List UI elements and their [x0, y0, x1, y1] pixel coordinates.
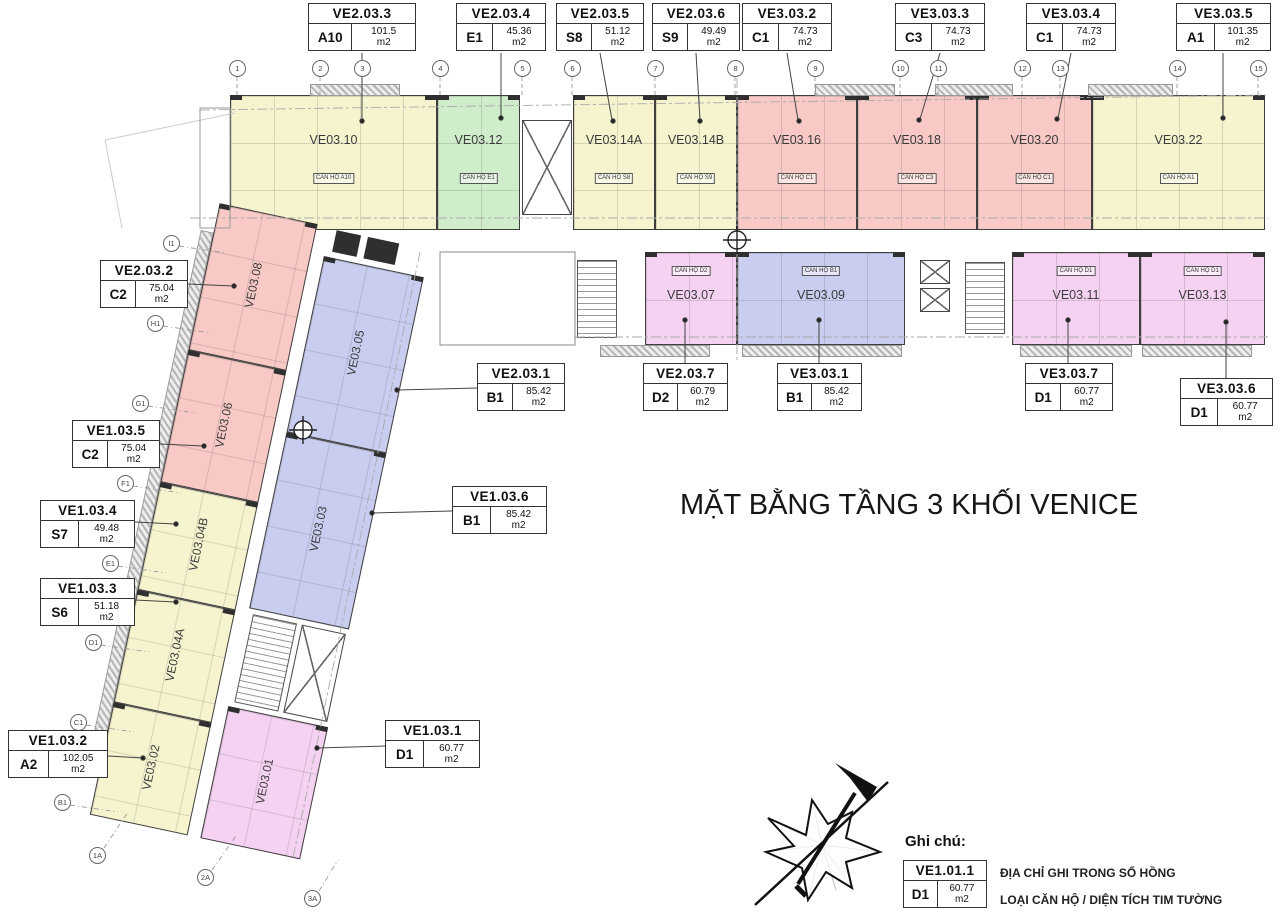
- callout-area: 74.73m2: [1063, 24, 1115, 50]
- callout-type: D1: [1181, 399, 1218, 425]
- unit-type-tag: CĂN HỘ C1: [778, 173, 817, 183]
- elevator-shaft: [920, 288, 950, 312]
- callout-area: 60.79m2: [678, 384, 727, 410]
- callout-code: VE1.03.5: [73, 421, 159, 441]
- callout-area: 85.42m2: [812, 384, 861, 410]
- callout-ve3-03-5: VE3.03.5A1101.35m2: [1176, 3, 1271, 51]
- unit-ve03-03: VE03.03: [249, 432, 386, 629]
- legend-heading: Ghi chú:: [905, 833, 966, 850]
- callout-type: A1: [1177, 24, 1215, 50]
- unit-ve03-12: VE03.12CĂN HỘ E1: [437, 95, 520, 230]
- callout-type: D1: [386, 741, 424, 767]
- callout-area: 74.73m2: [779, 24, 831, 50]
- callout-type: D1: [1026, 384, 1061, 410]
- unit-type-tag: CĂN HỘ E1: [459, 173, 497, 183]
- callout-type: C2: [101, 281, 136, 307]
- unit-type-tag: CĂN HỘ B1: [802, 266, 840, 276]
- stair-core: [577, 260, 617, 338]
- callout-area: 102.05m2: [49, 751, 107, 777]
- grid-bubble-c1: C1: [70, 714, 87, 731]
- unit-ve03-04b: VE03.04B: [138, 482, 259, 610]
- grid-bubble-14: 14: [1169, 60, 1186, 77]
- balcony-hatch: [310, 84, 400, 96]
- unit-ve03-09: VE03.09CĂN HỘ B1: [737, 252, 905, 345]
- callout-ve2-03-1: VE2.03.1B185.42m2: [477, 363, 565, 411]
- callout-area: 51.18m2: [79, 599, 134, 625]
- unit-label: VE03.20: [978, 133, 1091, 147]
- unit-ve03-18: VE03.18CĂN HỘ C3: [857, 95, 977, 230]
- callout-area: 60.77m2: [1218, 399, 1272, 425]
- callout-type: E1: [457, 24, 493, 50]
- elevator-shaft: [522, 120, 572, 215]
- callout-area: 49.49m2: [688, 24, 739, 50]
- callout-area: 45.36m2: [493, 24, 545, 50]
- unit-ve03-13: VE03.13CĂN HỘ D1: [1140, 252, 1265, 345]
- grid-bubble-8: 8: [727, 60, 744, 77]
- unit-type-tag: CĂN HỘ S9: [677, 173, 715, 183]
- unit-label: VE03.05: [338, 302, 372, 403]
- callout-ve2-03-7: VE2.03.7D260.79m2: [643, 363, 728, 411]
- unit-type-tag: CĂN HỘ A1: [1159, 173, 1197, 183]
- callout-area: 60.77m2: [1061, 384, 1112, 410]
- legend-line-2: LOẠI CĂN HỘ / DIỆN TÍCH TIM TƯỜNG: [1000, 893, 1222, 907]
- callout-code: VE2.03.6: [653, 4, 739, 24]
- balcony-hatch: [742, 345, 902, 357]
- unit-label: VE03.08: [236, 236, 270, 335]
- callout-area: 101.35m2: [1215, 24, 1270, 50]
- callout-area: 85.42m2: [513, 384, 564, 410]
- grid-bubble-9: 9: [807, 60, 824, 77]
- callout-ve1-03-5: VE1.03.5C275.04m2: [72, 420, 160, 468]
- callout-type: B1: [778, 384, 812, 410]
- unit-label: VE03.13: [1141, 288, 1264, 302]
- callout-ve3-03-4: VE3.03.4C174.73m2: [1026, 3, 1116, 51]
- unit-ve03-07: VE03.07CĂN HỘ D2: [645, 252, 737, 345]
- balcony-hatch: [1088, 84, 1173, 96]
- unit-label: VE03.03: [301, 479, 335, 580]
- grid-bubble-2a: 2A: [197, 869, 214, 886]
- grid-bubble-1: 1: [229, 60, 246, 77]
- grid-bubble-1a: 1A: [89, 847, 106, 864]
- unit-type-tag: CĂN HỘ S8: [595, 173, 633, 183]
- unit-label: VE03.04A: [158, 605, 192, 704]
- legend-line-1: ĐỊA CHỈ GHI TRONG SỔ HỒNG: [1000, 866, 1176, 880]
- unit-label: VE03.04B: [181, 495, 215, 594]
- callout-code: VE1.03.1: [386, 721, 479, 741]
- grid-bubble-5: 5: [514, 60, 531, 77]
- callout-type: S6: [41, 599, 79, 625]
- grid-bubble-13: 13: [1052, 60, 1069, 77]
- legend-sample-area: 60.77m2: [938, 881, 986, 907]
- unit-ve03-14a: VE03.14ACĂN HỘ S8: [573, 95, 655, 230]
- balcony-hatch: [815, 84, 895, 96]
- callout-type: S8: [557, 24, 592, 50]
- callout-type: C2: [73, 441, 108, 467]
- legend-sample-callout: VE1.01.1 D160.77m2: [903, 860, 987, 908]
- callout-code: VE3.03.1: [778, 364, 861, 384]
- unit-label: VE03.01: [247, 730, 281, 831]
- grid-bubble-e1: E1: [102, 555, 119, 572]
- page-title: MẶT BẰNG TẦNG 3 KHỐI VENICE: [680, 489, 1138, 522]
- callout-type: C1: [743, 24, 779, 50]
- balcony-hatch: [600, 345, 710, 357]
- callout-ve3-03-6: VE3.03.6D160.77m2: [1180, 378, 1273, 426]
- unit-label: VE03.11: [1013, 288, 1139, 302]
- compass-north-arrow: [755, 763, 888, 905]
- callout-area: 60.77m2: [424, 741, 479, 767]
- grid-bubble-2: 2: [312, 60, 329, 77]
- balcony-hatch: [1142, 345, 1252, 357]
- callout-type: S7: [41, 521, 79, 547]
- callout-ve1-03-2: VE1.03.2A2102.05m2: [8, 730, 108, 778]
- grid-bubble-4: 4: [432, 60, 449, 77]
- callout-area: 85.42m2: [491, 507, 546, 533]
- unit-ve03-14b: VE03.14BCĂN HỘ S9: [655, 95, 737, 230]
- unit-label: VE03.14A: [574, 133, 654, 147]
- callout-ve3-03-2: VE3.03.2C174.73m2: [742, 3, 832, 51]
- balcony-hatch: [1020, 345, 1132, 357]
- stair-core: [965, 262, 1005, 334]
- callout-ve1-03-1: VE1.03.1D160.77m2: [385, 720, 480, 768]
- unit-type-tag: CĂN HỘ D2: [672, 266, 711, 276]
- unit-ve03-10: VE03.10CĂN HỘ A10: [230, 95, 437, 230]
- callout-code: VE3.03.7: [1026, 364, 1112, 384]
- callout-code: VE1.03.2: [9, 731, 107, 751]
- grid-bubble-15: 15: [1250, 60, 1267, 77]
- grid-bubble-3a: 3A: [304, 890, 321, 907]
- callout-ve2-03-5: VE2.03.5S851.12m2: [556, 3, 644, 51]
- grid-bubble-7: 7: [647, 60, 664, 77]
- callout-code: VE1.03.6: [453, 487, 546, 507]
- callout-type: B1: [478, 384, 513, 410]
- unit-type-tag: CĂN HỘ D1: [1183, 266, 1222, 276]
- callout-ve1-03-3: VE1.03.3S651.18m2: [40, 578, 135, 626]
- unit-ve03-05: VE03.05: [287, 256, 424, 453]
- unit-type-tag: CĂN HỘ D1: [1057, 266, 1096, 276]
- unit-ve03-22: VE03.22CĂN HỘ A1: [1092, 95, 1265, 230]
- unit-label: VE03.22: [1093, 133, 1264, 147]
- callout-type: A10: [309, 24, 352, 50]
- callout-code: VE3.03.4: [1027, 4, 1115, 24]
- callout-code: VE2.03.5: [557, 4, 643, 24]
- grid-bubble-12: 12: [1014, 60, 1031, 77]
- unit-ve03-11: VE03.11CĂN HỘ D1: [1012, 252, 1140, 345]
- unit-label: VE03.02: [134, 717, 168, 816]
- unit-ve03-08: VE03.08: [189, 203, 318, 371]
- callout-ve3-03-7: VE3.03.7D160.77m2: [1025, 363, 1113, 411]
- grid-bubble-10: 10: [892, 60, 909, 77]
- unit-type-tag: CĂN HỘ C3: [898, 173, 937, 183]
- balcony-hatch: [935, 84, 1013, 96]
- unit-label: VE03.18: [858, 133, 976, 147]
- middle-band: VE03.07CĂN HỘ D2 VE03.09CĂN HỘ B1 VE03.1…: [575, 252, 1265, 345]
- callout-code: VE2.03.1: [478, 364, 564, 384]
- unit-ve03-20: VE03.20CĂN HỘ C1: [977, 95, 1092, 230]
- grid-bubble-g1: G1: [132, 395, 149, 412]
- grid-bubble-i1: I1: [163, 235, 180, 252]
- callout-code: VE2.03.4: [457, 4, 545, 24]
- callout-type: B1: [453, 507, 491, 533]
- callout-code: VE1.03.3: [41, 579, 134, 599]
- grid-bubble-b1: B1: [54, 794, 71, 811]
- legend-sample-code: VE1.01.1: [904, 861, 986, 881]
- unit-ve03-16: VE03.16CĂN HỘ C1: [737, 95, 857, 230]
- service-shaft: [363, 237, 399, 265]
- callout-area: 101.5m2: [352, 24, 415, 50]
- callout-type: S9: [653, 24, 688, 50]
- callout-ve1-03-4: VE1.03.4S749.48m2: [40, 500, 135, 548]
- unit-type-tag: CĂN HỘ C1: [1015, 173, 1054, 183]
- callout-type: C3: [896, 24, 932, 50]
- callout-type: A2: [9, 751, 49, 777]
- unit-label: VE03.10: [231, 133, 436, 147]
- callout-code: VE2.03.2: [101, 261, 187, 281]
- grid-bubble-11: 11: [930, 60, 947, 77]
- unit-label: VE03.12: [438, 133, 519, 147]
- callout-area: 74.73m2: [932, 24, 984, 50]
- callout-code: VE3.03.3: [896, 4, 984, 24]
- legend-sample-type: D1: [904, 881, 938, 907]
- unit-label: VE03.09: [738, 288, 904, 302]
- callout-type: D2: [644, 384, 678, 410]
- callout-ve1-03-6: VE1.03.6B185.42m2: [452, 486, 547, 534]
- callout-code: VE2.03.3: [309, 4, 415, 24]
- unit-label: VE03.14B: [656, 133, 736, 147]
- callout-area: 51.12m2: [592, 24, 643, 50]
- service-shaft: [332, 230, 361, 257]
- callout-code: VE1.03.4: [41, 501, 134, 521]
- grid-bubble-3: 3: [354, 60, 371, 77]
- callout-ve2-03-6: VE2.03.6S949.49m2: [652, 3, 740, 51]
- callout-area: 49.48m2: [79, 521, 134, 547]
- grid-bubble-h1: H1: [147, 315, 164, 332]
- callout-area: 75.04m2: [136, 281, 187, 307]
- grid-bubble-f1: F1: [117, 475, 134, 492]
- unit-label: VE03.06: [207, 375, 241, 474]
- callout-ve2-03-3: VE2.03.3A10101.5m2: [308, 3, 416, 51]
- grid-bubble-d1: D1: [85, 634, 102, 651]
- callout-area: 75.04m2: [108, 441, 159, 467]
- callout-type: C1: [1027, 24, 1063, 50]
- callout-ve2-03-2: VE2.03.2C275.04m2: [100, 260, 188, 308]
- callout-ve3-03-3: VE3.03.3C374.73m2: [895, 3, 985, 51]
- unit-ve03-01: VE03.01: [200, 706, 328, 859]
- callout-ve3-03-1: VE3.03.1B185.42m2: [777, 363, 862, 411]
- callout-ve2-03-4: VE2.03.4E145.36m2: [456, 3, 546, 51]
- unit-label: VE03.07: [646, 288, 736, 302]
- grid-bubble-6: 6: [564, 60, 581, 77]
- callout-code: VE3.03.5: [1177, 4, 1270, 24]
- callout-code: VE2.03.7: [644, 364, 727, 384]
- unit-label: VE03.16: [738, 133, 856, 147]
- floor-plan: VE03.10CĂN HỘ A10 VE03.12CĂN HỘ E1 VE03.…: [0, 0, 1280, 920]
- callout-code: VE3.03.6: [1181, 379, 1272, 399]
- unit-type-tag: CĂN HỘ A10: [313, 173, 354, 183]
- top-band: VE03.10CĂN HỘ A10 VE03.12CĂN HỘ E1 VE03.…: [230, 95, 1265, 230]
- elevator-shaft: [920, 260, 950, 284]
- callout-code: VE3.03.2: [743, 4, 831, 24]
